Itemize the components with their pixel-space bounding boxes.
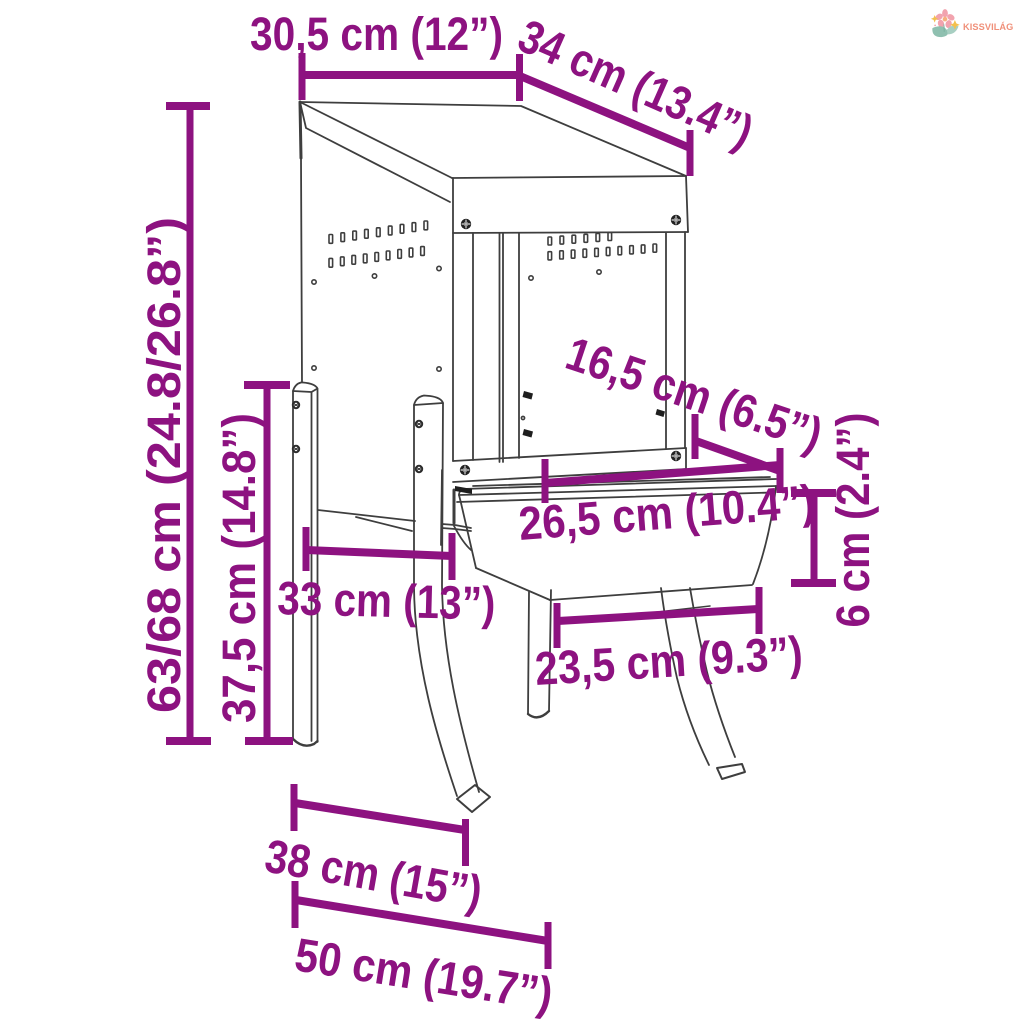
svg-text:37,5 cm (14.8”): 37,5 cm (14.8”) xyxy=(212,413,265,723)
svg-text:63/68 cm (24.8/26.8”): 63/68 cm (24.8/26.8”) xyxy=(137,217,190,713)
svg-text:23,5 cm (9.3”): 23,5 cm (9.3”) xyxy=(533,626,804,695)
svg-text:KISSVILÁG: KISSVILÁG xyxy=(963,21,1013,32)
svg-text:50 cm (19.7”): 50 cm (19.7”) xyxy=(291,928,556,1021)
svg-text:6 cm (2.4”): 6 cm (2.4”) xyxy=(826,413,879,628)
svg-text:33 cm (13”): 33 cm (13”) xyxy=(277,571,496,630)
svg-text:34 cm (13.4”): 34 cm (13.4”) xyxy=(511,9,761,158)
svg-text:30,5 cm (12”): 30,5 cm (12”) xyxy=(250,7,503,60)
